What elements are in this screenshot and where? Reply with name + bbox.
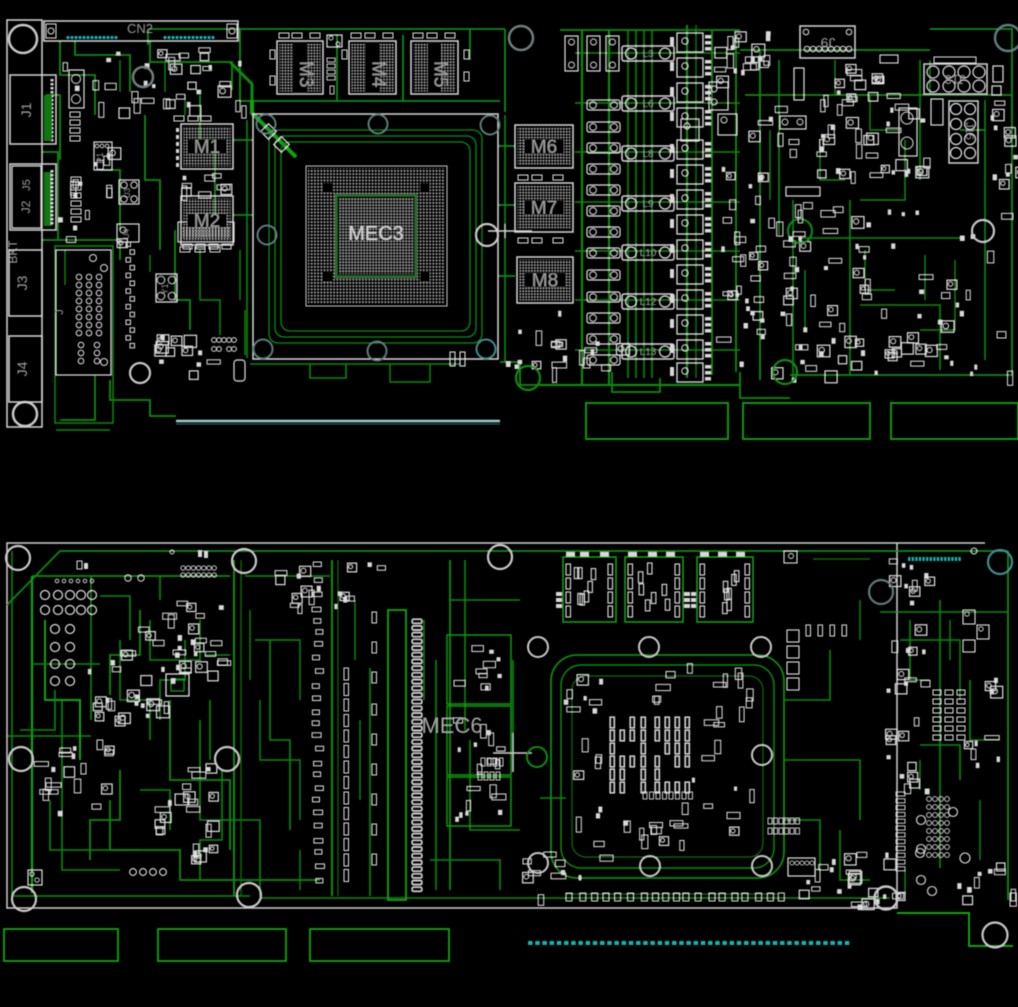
svg-text:L6: L6 [642, 99, 654, 110]
svg-text:M1: M1 [194, 137, 220, 158]
svg-text:L10: L10 [640, 248, 657, 259]
svg-text:J4: J4 [14, 361, 30, 376]
svg-text:J9: J9 [820, 35, 835, 51]
svg-text:BKT: BKT [6, 240, 20, 264]
svg-text:M5: M5 [430, 61, 451, 87]
svg-text:MEC6: MEC6 [421, 713, 482, 738]
svg-text:U3: U3 [123, 187, 132, 198]
svg-text:MEC3: MEC3 [348, 223, 404, 245]
svg-text:M3: M3 [295, 61, 316, 87]
svg-text:J1: J1 [18, 102, 34, 117]
svg-text:M6: M6 [531, 137, 557, 158]
svg-text:J5: J5 [21, 179, 33, 191]
svg-text:L12: L12 [640, 297, 657, 308]
svg-text:U4: U4 [122, 228, 131, 239]
svg-text:J2: J2 [19, 200, 33, 213]
svg-text:CN2: CN2 [127, 21, 153, 36]
svg-text:M4: M4 [368, 61, 389, 88]
svg-text:M7: M7 [531, 198, 557, 219]
svg-text:P1: P1 [95, 152, 105, 163]
svg-text:L8: L8 [642, 149, 654, 160]
svg-text:L9: L9 [642, 199, 654, 210]
svg-text:L3: L3 [642, 49, 654, 60]
svg-text:Y1: Y1 [160, 283, 170, 294]
svg-text:M2: M2 [194, 211, 220, 232]
svg-text:J15: J15 [963, 122, 975, 140]
svg-text:J: J [54, 309, 66, 315]
svg-text:M8: M8 [532, 271, 558, 292]
svg-text:J3: J3 [14, 275, 30, 290]
svg-text:L13: L13 [640, 347, 657, 358]
svg-text:J13: J13 [945, 72, 966, 87]
